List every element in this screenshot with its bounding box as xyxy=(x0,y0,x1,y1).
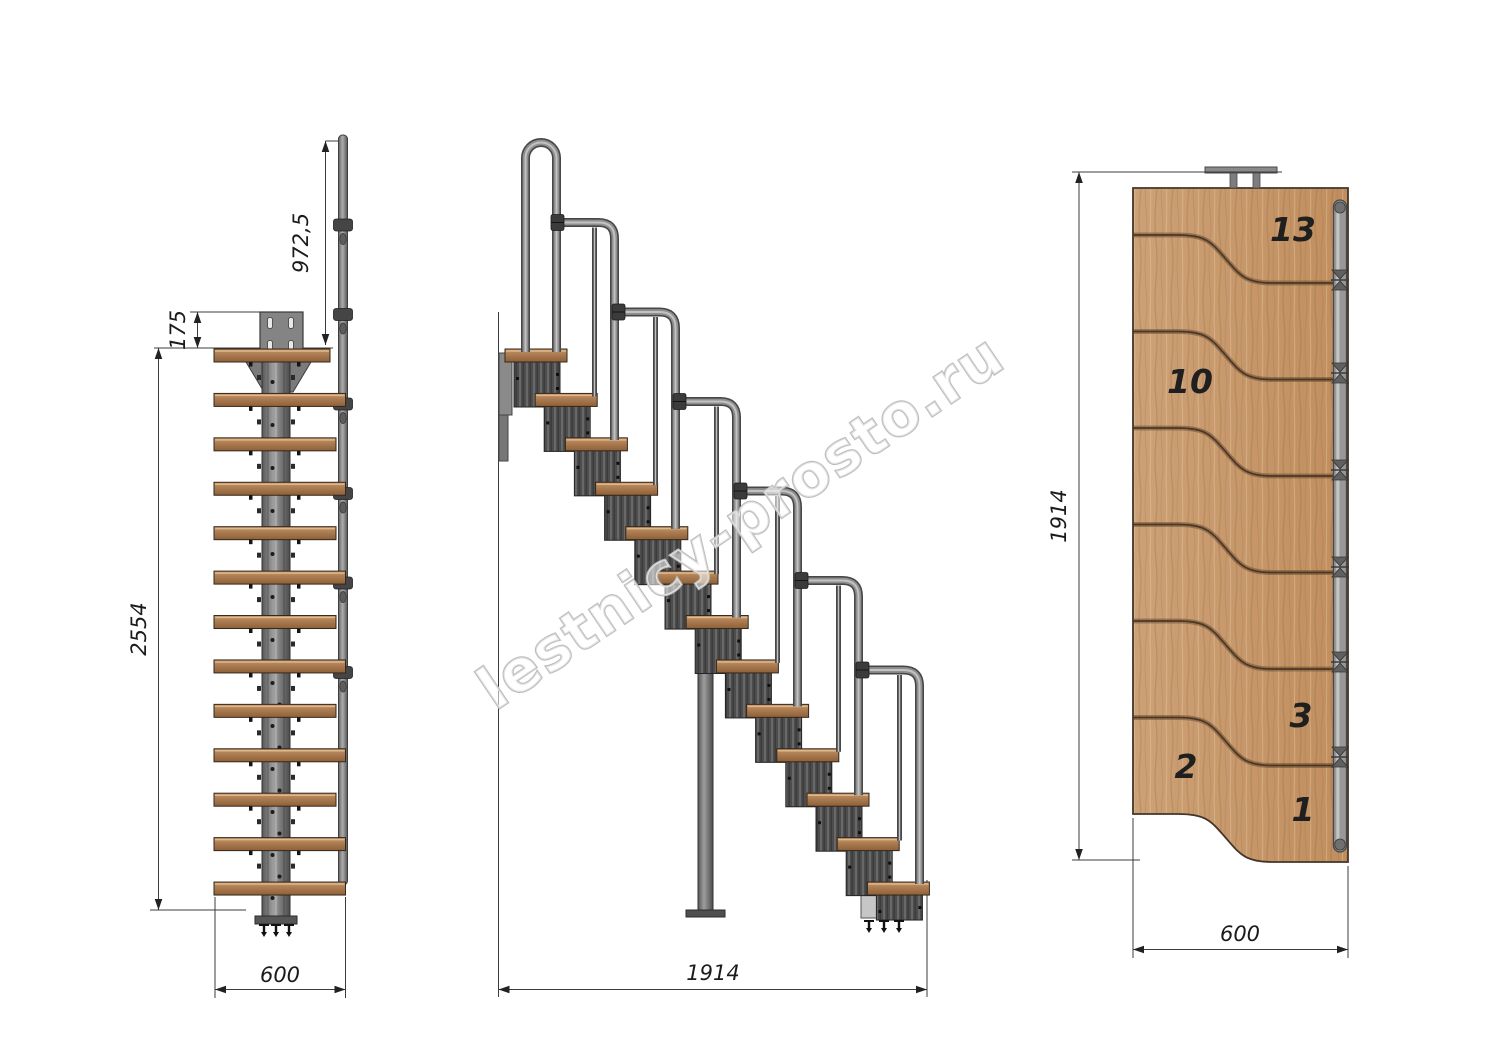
rail-joint-drop xyxy=(340,413,346,424)
tread-bolt xyxy=(249,806,253,811)
module-bolt xyxy=(556,373,559,376)
rail-joint-drop xyxy=(340,592,346,603)
front-view-drawing xyxy=(150,135,353,998)
plan-view-drawing xyxy=(1072,167,1349,958)
anchor-bolt xyxy=(881,928,887,933)
dim-label-plan-run: 1914 xyxy=(1047,489,1071,542)
tread-bolt xyxy=(249,451,253,456)
tread-bolt xyxy=(297,495,301,500)
module-bolt xyxy=(828,787,831,790)
module-lug xyxy=(291,642,295,647)
dimension-arrow xyxy=(322,141,330,152)
handrail-cap xyxy=(1335,839,1345,850)
dim-label-total-height: 2554 xyxy=(127,602,151,655)
module-lug xyxy=(291,375,295,380)
module xyxy=(876,893,922,920)
dim-label-front-width: 600 xyxy=(260,963,300,987)
staircase-technical-drawing: 972,5 175 2554 600 1914 1914 600 13 10 3… xyxy=(0,0,1500,1061)
stringer-hole xyxy=(271,552,275,556)
module-bolt xyxy=(616,462,619,465)
tread-bolt xyxy=(249,762,253,767)
module-bolt xyxy=(697,644,700,647)
module-bolt xyxy=(828,773,831,776)
dim-label-plate-offset: 175 xyxy=(166,310,190,350)
stringer-hole xyxy=(271,423,275,427)
tread-bolt xyxy=(297,406,301,411)
stringer-hole xyxy=(278,832,282,836)
step-number-13: 13 xyxy=(1270,210,1316,249)
module-bolt xyxy=(788,777,791,780)
step-number-10: 10 xyxy=(1167,362,1213,401)
module-bolt xyxy=(798,742,801,745)
module-bolt xyxy=(758,732,761,735)
stringer-hole xyxy=(278,875,282,879)
dimension-arrow xyxy=(1075,849,1083,860)
step-number-3: 3 xyxy=(1290,696,1313,735)
module-bolt xyxy=(586,417,589,420)
module-bolt xyxy=(516,377,519,380)
stringer-hole xyxy=(271,724,275,728)
module-bolt xyxy=(888,876,891,879)
dimension-arrow xyxy=(155,348,163,359)
anchor-bolt xyxy=(273,932,279,937)
anchor-bolt xyxy=(868,920,870,929)
dimension-arrow xyxy=(1337,946,1348,954)
stringer-hole xyxy=(271,380,275,384)
module-lug xyxy=(257,419,261,424)
tread-bolt xyxy=(297,851,301,856)
drawing-svg: 972,5 175 2554 600 1914 1914 600 13 10 3… xyxy=(0,0,1500,1061)
module-bolt xyxy=(647,520,650,523)
tread-bolt xyxy=(249,406,253,411)
anchor-bolt xyxy=(898,920,900,929)
rail-joint-drop xyxy=(340,323,346,334)
stringer-hole xyxy=(271,681,275,685)
module-lug xyxy=(257,730,261,735)
stringer-hole xyxy=(271,595,275,599)
side-view-labels: 1914 xyxy=(686,961,739,985)
module-lug xyxy=(257,864,261,869)
rail-joint xyxy=(334,219,353,231)
module-lug xyxy=(257,642,261,647)
module-bolt xyxy=(727,688,730,691)
tread-bolt xyxy=(249,584,253,589)
stringer-hole xyxy=(271,509,275,513)
plate-slot xyxy=(289,318,294,329)
module-bolt xyxy=(888,862,891,865)
anchor-bolt xyxy=(288,924,290,933)
module-lug xyxy=(257,553,261,558)
stringer-hole xyxy=(271,767,275,771)
module-lug xyxy=(257,375,261,380)
module-lug xyxy=(291,553,295,558)
tread-bolt xyxy=(297,717,301,722)
module-bolt xyxy=(586,431,589,434)
base-plate xyxy=(255,916,297,924)
module-bolt xyxy=(546,421,549,424)
module-bolt xyxy=(858,817,861,820)
step-number-2: 2 xyxy=(1175,747,1198,786)
tread-bolt xyxy=(297,762,301,767)
module-lug xyxy=(291,508,295,513)
stringer-hole xyxy=(271,466,275,470)
tread-bolt xyxy=(297,806,301,811)
anchor-bolt xyxy=(275,924,277,933)
module-bolt xyxy=(616,476,619,479)
module-bolt xyxy=(647,506,650,509)
anchor-bolt xyxy=(286,932,292,937)
dimension-arrow xyxy=(194,312,202,323)
module-bolt xyxy=(576,466,579,469)
tread-bolt xyxy=(249,362,253,367)
tread-bolt xyxy=(297,451,301,456)
module-lug xyxy=(257,464,261,469)
module-bolt xyxy=(918,906,921,909)
module-lug xyxy=(291,775,295,780)
module-lug xyxy=(291,464,295,469)
module-lug xyxy=(291,686,295,691)
module-bolt xyxy=(707,595,710,598)
module-lug xyxy=(291,419,295,424)
module-bolt xyxy=(737,654,740,657)
stringer-hole xyxy=(271,896,275,900)
dimension-arrow xyxy=(1133,946,1144,954)
dimension-arrow xyxy=(155,899,163,910)
tread-bolt xyxy=(249,673,253,678)
module-lug xyxy=(291,819,295,824)
module-lug xyxy=(257,508,261,513)
module-bolt xyxy=(818,821,821,824)
tread-bolt xyxy=(297,673,301,678)
stringer-hole xyxy=(271,638,275,642)
anchor-bolt xyxy=(896,928,902,933)
module-bolt xyxy=(767,698,770,701)
module-lug xyxy=(257,597,261,602)
tread-bolt xyxy=(297,629,301,634)
module-bolt xyxy=(858,831,861,834)
stringer-hole xyxy=(271,810,275,814)
handrail-loop xyxy=(526,143,557,353)
rail-joint-drop xyxy=(340,502,346,513)
tread-bolt xyxy=(297,362,301,367)
dim-label-plan-width: 600 xyxy=(1220,922,1260,946)
tread-bolt xyxy=(249,629,253,634)
module-bolt xyxy=(848,866,851,869)
wall-bracket-lower xyxy=(499,415,508,461)
dimension-arrow xyxy=(335,986,346,994)
stringer-hole xyxy=(271,853,275,857)
module-bolt xyxy=(607,510,610,513)
module-bolt xyxy=(878,910,881,913)
rail-joint-drop xyxy=(340,234,346,245)
wall-plate-stub xyxy=(1253,173,1260,188)
dim-label-run-length: 1914 xyxy=(686,961,739,985)
handrail-loop xyxy=(526,143,557,353)
tread-bolt xyxy=(249,717,253,722)
module-lug xyxy=(291,730,295,735)
anchor-bolt xyxy=(261,932,267,937)
dimension-arrow xyxy=(499,986,510,994)
tread-bolt xyxy=(249,495,253,500)
module-lug xyxy=(291,864,295,869)
dim-label-handrail-height: 972,5 xyxy=(289,213,313,273)
rail-joint-drop xyxy=(340,681,346,692)
dimension-arrow xyxy=(215,986,226,994)
plate-slot xyxy=(268,318,273,329)
module-lug xyxy=(257,775,261,780)
dimension-arrow xyxy=(194,337,202,348)
module-bolt xyxy=(798,728,801,731)
column-foot xyxy=(686,910,725,917)
handrail-loop-highlight xyxy=(526,143,557,353)
dimension-arrow xyxy=(1075,172,1083,183)
rail-joint xyxy=(334,309,353,321)
module-lug xyxy=(257,819,261,824)
module-lug xyxy=(257,686,261,691)
module-lug xyxy=(291,597,295,602)
module-bolt xyxy=(556,387,559,390)
dimension-arrow xyxy=(916,986,927,994)
tread-bolt xyxy=(249,540,253,545)
module-bolt xyxy=(767,684,770,687)
module-bolt xyxy=(737,640,740,643)
anchor-bolt xyxy=(883,920,885,929)
wall-plate-stub xyxy=(1230,173,1237,188)
tread-bolt xyxy=(297,584,301,589)
support-column xyxy=(698,650,713,912)
module-bolt xyxy=(707,609,710,612)
step-number-1: 1 xyxy=(1292,790,1315,829)
tread-bolt xyxy=(249,851,253,856)
dimension-arrow xyxy=(322,334,330,345)
stringer-hole xyxy=(278,789,282,793)
anchor-bolt xyxy=(866,928,872,933)
tread-bolt xyxy=(297,540,301,545)
anchor-bolt xyxy=(263,924,265,933)
handrail-cap xyxy=(1335,202,1345,213)
